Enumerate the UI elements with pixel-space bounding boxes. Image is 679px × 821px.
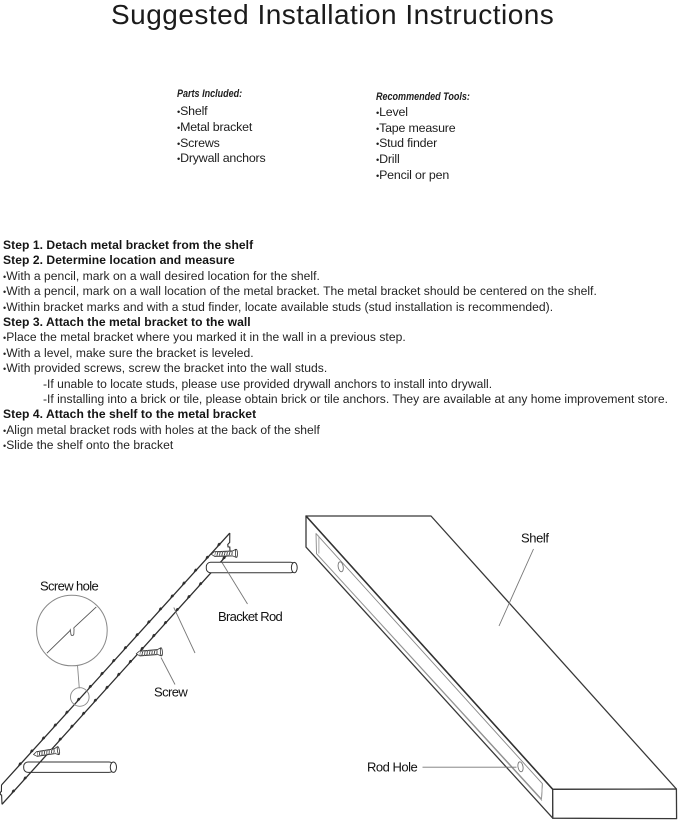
svg-text:Rod Hole: Rod Hole bbox=[367, 760, 417, 775]
svg-text:Bracket Rod: Bracket Rod bbox=[218, 609, 283, 624]
svg-text:Shelf: Shelf bbox=[521, 531, 549, 546]
svg-text:Screw: Screw bbox=[154, 685, 188, 700]
svg-text:Screw hole: Screw hole bbox=[40, 579, 98, 594]
